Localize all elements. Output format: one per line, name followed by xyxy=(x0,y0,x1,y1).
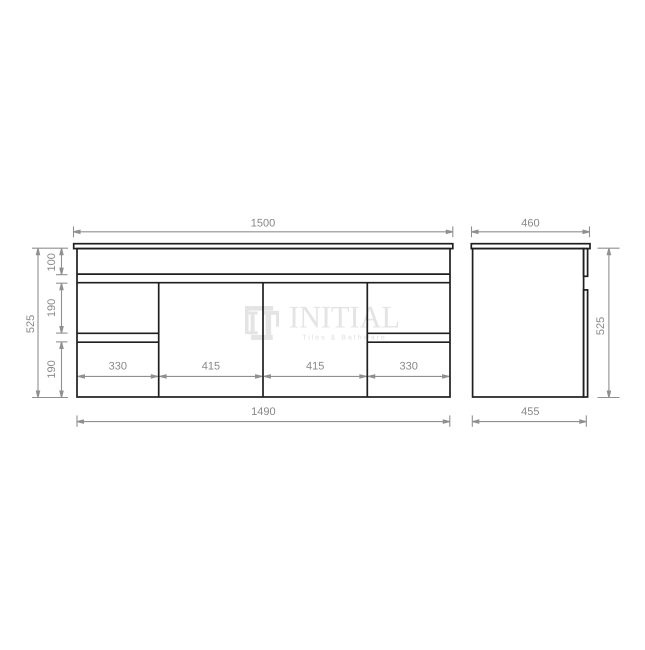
svg-text:1490: 1490 xyxy=(251,406,275,418)
svg-text:525: 525 xyxy=(25,315,37,333)
svg-text:190: 190 xyxy=(46,299,58,317)
svg-text:330: 330 xyxy=(109,360,127,372)
svg-text:455: 455 xyxy=(521,406,539,418)
svg-text:460: 460 xyxy=(521,217,539,229)
svg-text:415: 415 xyxy=(202,360,220,372)
svg-text:415: 415 xyxy=(306,360,324,372)
svg-text:190: 190 xyxy=(46,360,58,378)
svg-text:330: 330 xyxy=(400,360,418,372)
svg-text:Tiles & Bathware: Tiles & Bathware xyxy=(302,334,387,342)
svg-text:100: 100 xyxy=(46,253,58,271)
svg-text:525: 525 xyxy=(595,317,607,335)
svg-text:1500: 1500 xyxy=(251,217,275,229)
svg-text:INITIAL: INITIAL xyxy=(289,299,400,334)
